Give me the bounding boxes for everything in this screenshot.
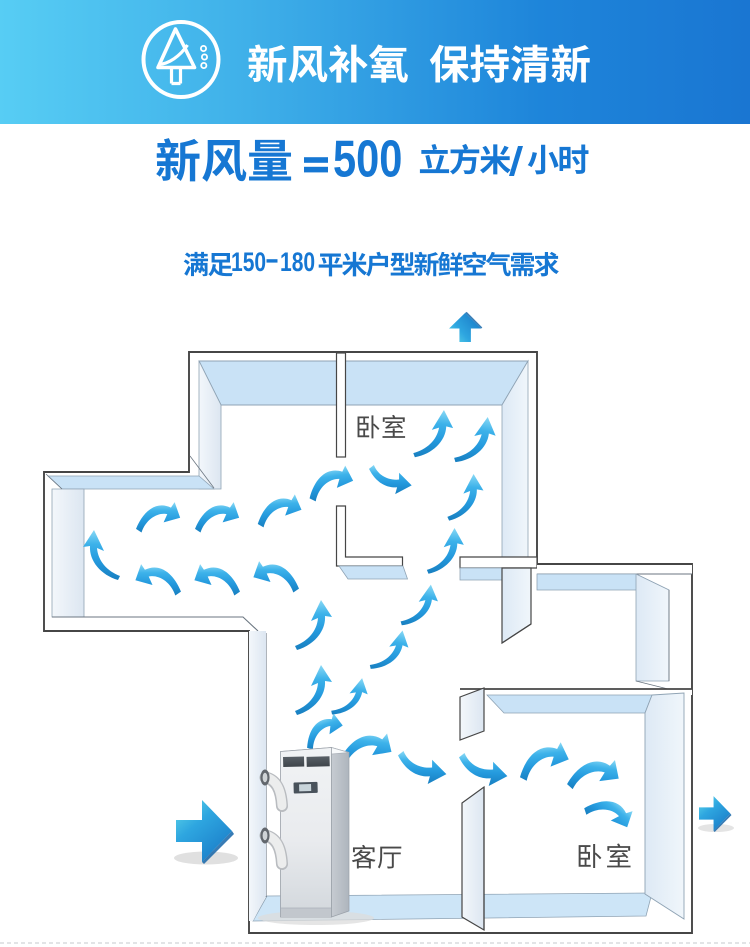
svg-text:500: 500: [333, 129, 402, 188]
svg-text:180: 180: [280, 248, 315, 278]
svg-text:150: 150: [231, 248, 266, 278]
